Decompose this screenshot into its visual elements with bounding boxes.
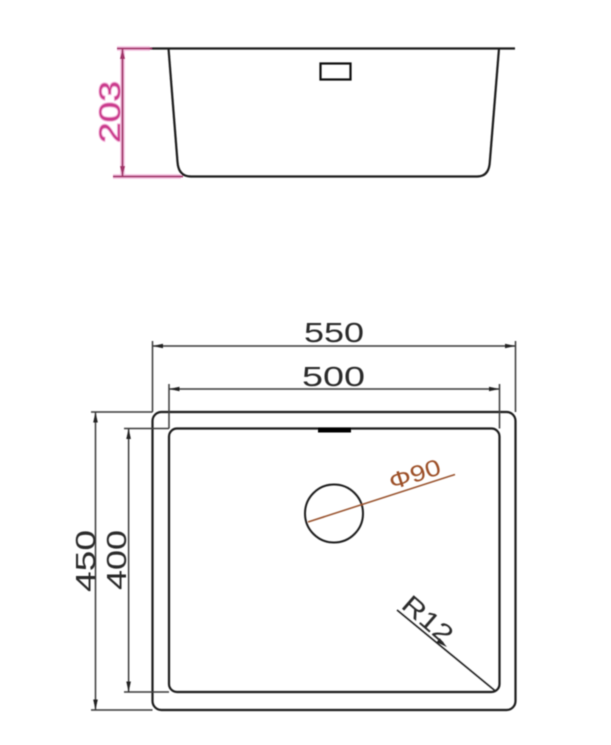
svg-text:550: 550: [304, 317, 364, 348]
svg-text:500: 500: [302, 361, 365, 392]
svg-text:400: 400: [101, 530, 132, 590]
svg-text:450: 450: [70, 530, 101, 592]
svg-text:203: 203: [94, 81, 127, 143]
